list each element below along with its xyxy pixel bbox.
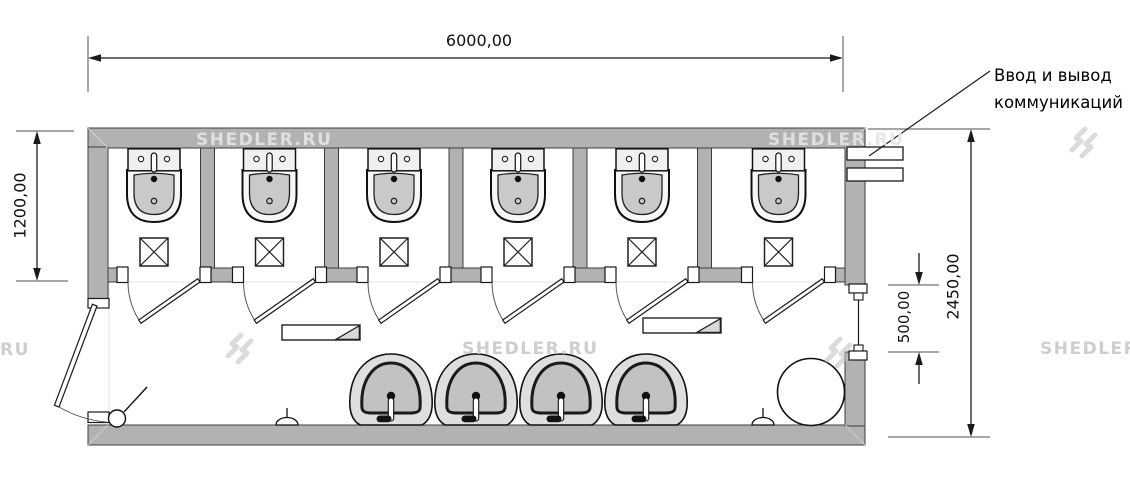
floor-drain-icon	[380, 238, 408, 266]
front-partition-piers	[108, 268, 845, 282]
communications-note-line1: Ввод и вывод	[994, 66, 1112, 85]
shelf	[643, 318, 721, 333]
stall-door	[233, 267, 327, 323]
watermark-text: SHEDLER.RU	[1040, 339, 1130, 359]
watermark-logo-icon	[1072, 129, 1095, 156]
floor-drain-icon	[504, 238, 532, 266]
floor-drain-icon	[765, 238, 793, 266]
drain-bump-icon	[276, 408, 298, 425]
toilet-icon	[367, 149, 421, 222]
sink-icon	[350, 354, 432, 425]
floor-drain-icon	[140, 238, 168, 266]
dimension-window-width-label: 500,00	[895, 277, 913, 357]
stall-door	[357, 267, 451, 323]
watermark-text-fragment: RU	[0, 340, 30, 360]
watermark-logo-icon	[228, 335, 251, 362]
dimension-total-depth-label: 2450,00	[944, 227, 963, 347]
floor-drain-icon	[256, 238, 284, 266]
right-wall-window	[849, 284, 867, 360]
sinks	[350, 354, 687, 425]
floor-plan-canvas: 6000,00 1200,00 2450,00 500,00 Ввод и вы…	[0, 0, 1130, 479]
wall-bottom	[88, 425, 865, 445]
stall-door	[117, 267, 211, 323]
sink-icon	[435, 354, 517, 425]
toilet-icon	[615, 149, 669, 222]
toilet-icon	[243, 149, 297, 222]
stall-partition	[449, 148, 463, 268]
drain-bump-icon	[752, 408, 774, 425]
toilet-icon	[491, 149, 545, 222]
shelf	[282, 325, 360, 340]
floor-drain-icon	[628, 238, 656, 266]
stall-partition	[698, 148, 712, 268]
stall-partition	[201, 148, 215, 268]
sink-icon	[605, 354, 687, 425]
stall-partition	[573, 148, 587, 268]
water-tank	[778, 359, 845, 426]
wall-left	[88, 147, 108, 300]
watermark-text: SHEDLER.RU	[196, 130, 332, 150]
tap-icon	[109, 387, 148, 427]
dimension-top-width-label: 6000,00	[419, 31, 539, 50]
watermark-text: SHEDLER.RU	[768, 130, 904, 150]
pipe	[847, 168, 903, 181]
stall-door	[742, 267, 836, 323]
toilet-icon	[127, 149, 181, 222]
stall-door	[481, 267, 575, 323]
toilet-icon	[752, 149, 806, 222]
stall-partition	[325, 148, 339, 268]
stall-door	[605, 267, 699, 323]
dimension-stall-depth-label: 1200,00	[11, 146, 30, 266]
floor-drains	[140, 238, 793, 266]
communications-note-line2: коммуникаций	[994, 93, 1123, 112]
sink-icon	[520, 354, 602, 425]
entrance-door	[54, 299, 109, 423]
watermark-text: SHEDLER.RU	[462, 339, 598, 359]
wall-right-lower	[845, 352, 865, 426]
